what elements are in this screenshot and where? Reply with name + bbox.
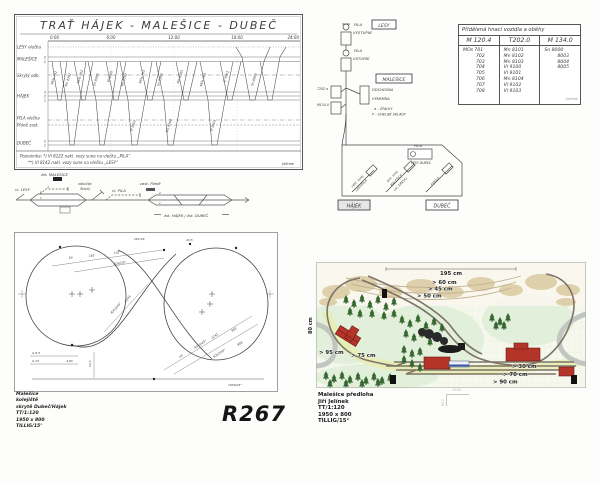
info-line: TT/1:120 — [318, 405, 373, 412]
measurement: > 95 cm — [319, 350, 344, 356]
sketch-line — [446, 394, 447, 406]
table-column-m120: MOs 701 702 703 704 705 706 707 708 — [459, 46, 500, 104]
column-header: M 120.4 — [459, 36, 500, 45]
row-label-plane: Pláně zast. — [17, 123, 39, 128]
info-line: 1950 x 800 — [318, 412, 373, 419]
loop-pila-label: PILA — [414, 143, 423, 148]
schematic-label-lesy: vl. LESY — [15, 187, 31, 192]
info-line: TILLIG/15° — [16, 424, 67, 430]
track-number: 2 — [44, 55, 46, 59]
dim-label: G 6,5 — [32, 351, 40, 355]
table-column-t202: Mn 8101 Mn 8102 Mn 8103 Vl 9100 Vl 9101 … — [500, 46, 541, 104]
schematic-label-skryty: Skrytý — [80, 187, 90, 191]
dim-label: 102 — [114, 250, 120, 255]
colored-layout-plan: 195 cm > 60 cm > 45 cm > 50 cm > 95 cm >… — [316, 262, 586, 388]
row-label-skryty: Skrytý odb. — [17, 73, 40, 78]
vehicle-circulation-table: Přidělená hnací vozidla a oběhy M 120.4 … — [458, 24, 581, 105]
building-far-right — [559, 367, 574, 376]
measurement: > 60 cm — [432, 280, 457, 286]
column-header: M 134.0 — [540, 36, 580, 45]
track-number: 1 — [44, 60, 46, 64]
row-label-pila: PILA vlečka — [17, 116, 40, 121]
info-line: TILLIG/15° — [318, 418, 373, 425]
table-body: MOs 701 702 703 704 705 706 707 708 Mn 8… — [459, 46, 580, 104]
dubec-label: DUBEČ — [434, 203, 452, 210]
dim-label: 14,5 — [88, 360, 92, 367]
schematic-label-odbocka: odbočka — [78, 182, 92, 186]
time-label: 24:00 — [287, 35, 299, 40]
measurement: > 90 cm — [493, 380, 518, 386]
t202-label: T202 a — [317, 87, 328, 91]
color-plan-info-block: Malešice předloha Jiří Jelínek TT/1:120 … — [318, 392, 373, 425]
loop-lesy-dubec-label: LESY DUBEČ — [411, 160, 432, 165]
schematic-label-pila: vl. PILA — [112, 188, 126, 193]
plan-border — [15, 233, 278, 392]
info-line: Malešice předloha — [318, 392, 373, 399]
scanned-railway-plans-page: { "timetable": { "title": "TRAŤ HÁJEK - … — [0, 0, 600, 486]
schematic-track-number: 2 — [40, 190, 42, 194]
signature: Jelínek — [281, 162, 295, 166]
time-label: 6:00 — [107, 35, 116, 40]
dim-label: 1950/45° — [228, 383, 242, 387]
pila-input-label-1: PILA — [354, 48, 363, 53]
schematic-track-number: 2 — [159, 191, 161, 195]
dim-label: G 13 — [32, 359, 39, 363]
table-cell: 8005 — [544, 65, 580, 71]
line-schematic: vl. LESY žst. MALEŠICE odbočka Skrytý vl… — [14, 172, 254, 224]
timetable-panel: TRAŤ HÁJEK - MALEŠICE - DUBEČ 0:00 6:00 … — [14, 14, 303, 170]
dim-label: 262,46 — [134, 237, 145, 241]
pila-output-label-2: VÝSTUPNÍ — [353, 30, 373, 35]
wagon — [449, 361, 469, 367]
row-label-lesy: LESY vlečka — [17, 45, 41, 50]
pila-output-label-1: PILA — [354, 22, 363, 27]
table-cell: 708 — [463, 89, 499, 95]
pila-box — [408, 149, 432, 159]
dim-label: 183 — [89, 253, 95, 258]
lesy-label: LESY — [378, 23, 390, 29]
table-title: Přidělená hnací vozidla a oběhy — [459, 25, 580, 36]
measurement: > 50 cm — [417, 294, 442, 300]
timetable-footnote-1: Poznámka: *) Vl 8122 nakl. vozy sune na … — [20, 154, 131, 159]
time-label: 12:00 — [168, 35, 180, 40]
halt-mark — [146, 188, 155, 191]
plan-info-block: Malešice kolejiště skrytě Dubeč/Hájek TT… — [16, 392, 67, 430]
building-right — [506, 348, 540, 361]
schematic-track-number: 1 — [40, 196, 42, 200]
dim-label: 43,5 — [186, 238, 193, 242]
dim-label: 4,63 — [66, 359, 73, 363]
building-right-annex — [514, 343, 528, 349]
measurement: > 45 cm — [428, 287, 453, 293]
siding-label: FIDDLE — [430, 176, 441, 187]
malesice-label: MALEŠICE — [383, 76, 406, 83]
radius-label: R267 — [222, 402, 286, 426]
sketch-line — [447, 394, 469, 395]
building-center — [424, 357, 450, 369]
info-line: Jiří Jelínek — [318, 399, 373, 406]
time-label: 18:00 — [231, 35, 243, 40]
dim-label: 83 — [69, 255, 73, 260]
table-cell: Vl 9103 — [504, 89, 540, 95]
row-label-dubec: DUBEČ — [17, 141, 31, 146]
staging-schematic-panel: LESY MALEŠICE HÁJEK DUBEČ PILA VÝSTUPNÍ … — [316, 14, 586, 226]
schematic-track-number: 4 — [47, 185, 49, 189]
measurement: > 30 cm — [512, 364, 537, 370]
table-column-m134: Sn 8000 8003 8004 8005 Jelínek — [540, 46, 580, 104]
m134-label: M134.0 — [317, 103, 329, 107]
track-plan-drawing: 262,46 43,5 83 183 102 R267/8° R353/45° … — [14, 232, 278, 392]
measurement-vertical: 80 cm — [308, 317, 314, 334]
schematic-label-malesice: žst. MALEŠICE — [40, 172, 68, 177]
measurement: > 75 cm — [351, 353, 376, 359]
track-number: 1 — [44, 98, 46, 102]
signature: Jelínek — [566, 97, 578, 103]
vykrmna-label: VÝKRMNA — [372, 96, 390, 101]
legend-a-label: a – ŠPALKY — [374, 106, 393, 111]
sketch-height-label: 800 — [441, 399, 445, 406]
measurement: 195 cm — [440, 271, 462, 277]
row-label-hajek: HÁJEK — [17, 94, 29, 99]
track-number: 1 — [44, 143, 46, 147]
row-label-malesice: MALEŠICE — [17, 57, 37, 62]
measurement: > 70 cm — [503, 372, 528, 378]
pila-input-label-2: VSTUPNÍ — [353, 56, 370, 61]
table-header: M 120.4 T202.0 M 134.0 — [459, 36, 580, 46]
hajek-label: HÁJEK — [347, 203, 362, 210]
column-header: T202.0 — [500, 36, 541, 45]
schematic-track-number: 1 — [159, 201, 161, 205]
legend-p-label: P – UHELNÉ SKLADY — [372, 112, 407, 117]
timetable-footnote-2: **) Vl 8142 nakl. vozy sune na vlečku „L… — [28, 160, 119, 165]
schematic-label-plane: zast. Pláně — [139, 181, 161, 186]
odchovna-label: ODCHOVNA — [372, 88, 394, 92]
time-label: 0:00 — [50, 35, 59, 40]
sketch-width-label: 1950 — [452, 388, 461, 392]
station-building-mark — [53, 177, 62, 181]
schematic-label-right: žst. HÁJEK / žst. DUBEČ — [163, 213, 209, 218]
timetable-title: TRAŤ HÁJEK - MALEŠICE - DUBEČ — [40, 19, 278, 32]
